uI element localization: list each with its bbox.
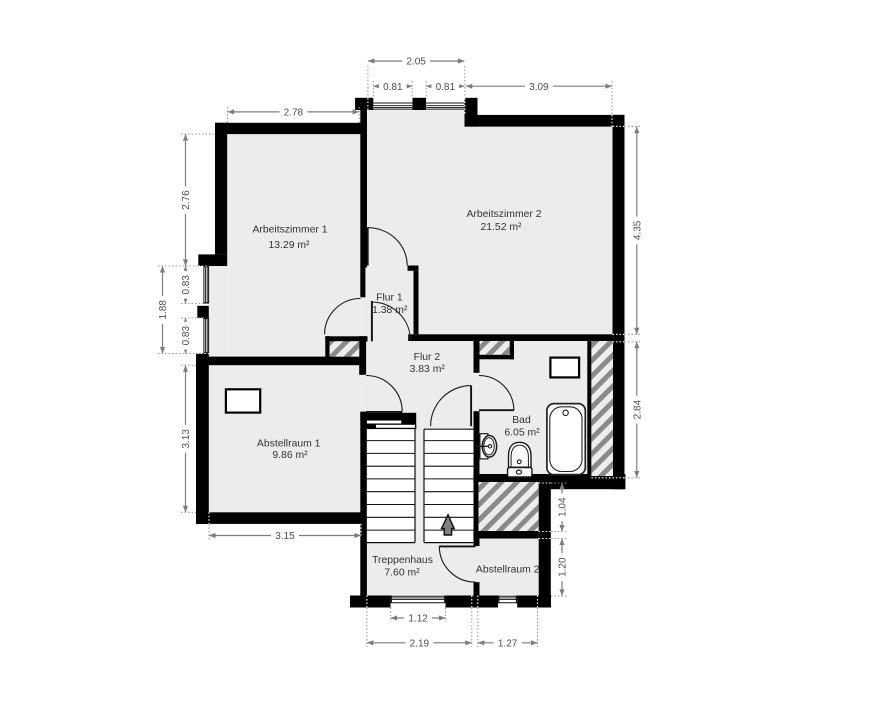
svg-text:1.20: 1.20 xyxy=(558,557,569,577)
svg-text:2.84: 2.84 xyxy=(633,399,644,419)
svg-text:Flur 1: Flur 1 xyxy=(376,293,403,304)
svg-text:3.15: 3.15 xyxy=(275,531,295,542)
svg-text:Bad: Bad xyxy=(512,415,531,426)
svg-text:21.52 m²: 21.52 m² xyxy=(480,222,522,233)
svg-text:0.81: 0.81 xyxy=(383,82,403,93)
svg-text:1.88: 1.88 xyxy=(158,300,169,320)
svg-text:1.38 m²: 1.38 m² xyxy=(372,305,408,316)
svg-text:9.86 m²: 9.86 m² xyxy=(272,450,308,461)
svg-text:1.12: 1.12 xyxy=(408,614,428,625)
svg-text:3.13: 3.13 xyxy=(181,429,192,449)
svg-text:Treppenhaus: Treppenhaus xyxy=(372,555,433,566)
svg-text:0.81: 0.81 xyxy=(436,82,456,93)
svg-text:Abstellraum 2: Abstellraum 2 xyxy=(476,564,540,575)
svg-text:2.19: 2.19 xyxy=(410,639,430,650)
svg-text:1.27: 1.27 xyxy=(498,639,518,650)
svg-text:4.35: 4.35 xyxy=(633,220,644,240)
svg-text:13.29 m²: 13.29 m² xyxy=(268,240,310,251)
svg-text:Arbeitszimmer 1: Arbeitszimmer 1 xyxy=(252,225,327,236)
svg-text:6.05 m²: 6.05 m² xyxy=(504,428,540,439)
svg-text:Arbeitszimmer 2: Arbeitszimmer 2 xyxy=(466,209,541,220)
svg-text:Abstellraum 1: Abstellraum 1 xyxy=(257,438,321,449)
svg-text:2.05: 2.05 xyxy=(406,57,426,68)
svg-text:7.60 m²: 7.60 m² xyxy=(384,567,420,578)
svg-text:2.78: 2.78 xyxy=(284,108,304,119)
svg-text:1.04: 1.04 xyxy=(558,497,569,517)
svg-text:Flur 2: Flur 2 xyxy=(414,352,441,363)
svg-text:3.83 m²: 3.83 m² xyxy=(410,364,446,375)
svg-text:0.83: 0.83 xyxy=(181,326,192,346)
svg-text:2.76: 2.76 xyxy=(181,190,192,210)
svg-text:3.09: 3.09 xyxy=(529,82,549,93)
svg-text:0.83: 0.83 xyxy=(181,275,192,295)
